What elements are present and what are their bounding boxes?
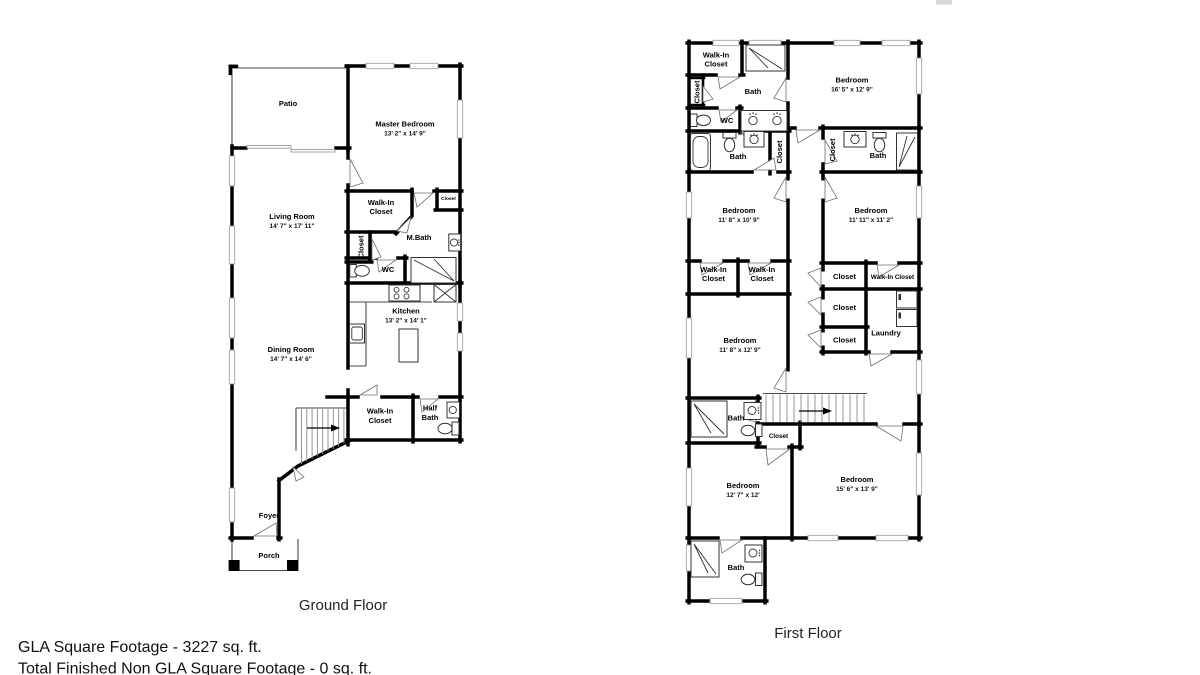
first-floor-title: First Floor [774, 625, 842, 642]
label-bath-left: Bath [730, 152, 747, 161]
label-closet-hall-left: Closet [775, 140, 784, 163]
ground-floor-title: Ground Floor [299, 597, 387, 614]
footer-non-gla: Total Finished Non GLA Square Footage - … [18, 661, 372, 675]
label-closet-vertical: Closet [357, 235, 366, 258]
label-patio: Patio [279, 99, 298, 108]
label-laundry: Laundry [871, 329, 901, 338]
label-wic-b1: Walk-In [749, 265, 776, 274]
floor-plan-canvas: Patio Master Bedroom 13' 2" x 14' 9" Liv… [0, 0, 1200, 675]
floor-plan-page: Patio Master Bedroom 13' 2" x 14' 9" Liv… [0, 0, 1200, 675]
dims-bedroom-1: 16' 5" x 12' 9" [831, 87, 873, 94]
label-closet-small: Closet [441, 196, 456, 202]
label-bath-bottom: Bath [728, 563, 745, 572]
label-living-room: Living Room [269, 212, 315, 221]
dims-master-bedroom: 13' 2" x 14' 9" [384, 131, 426, 138]
ground-stairs [302, 409, 344, 464]
label-bath-top: Bath [745, 87, 762, 96]
label-wc: WC [382, 265, 395, 274]
label-half-bath-a: Half [423, 404, 438, 413]
label-walk-in-closet-1b: Closet [370, 207, 393, 216]
ground-floor-plan: Patio Master Bedroom 13' 2" x 14' 9" Liv… [229, 63, 463, 614]
dims-dining-room: 14' 7" x 14' 6" [270, 356, 312, 363]
label-walk-in-closet-r: Walk-In Closet [871, 274, 915, 281]
label-bedroom-4: Bedroom [724, 336, 757, 345]
dims-bedroom-4: 11' 8" x 12' 9" [719, 347, 760, 354]
label-walk-in-closet-2b: Closet [369, 416, 392, 425]
label-walk-in-closet-1a: Walk-In [368, 198, 395, 207]
first-walls [687, 41, 921, 603]
label-dining-room: Dining Room [268, 345, 315, 354]
label-master-bedroom: Master Bedroom [375, 120, 435, 129]
label-closet-hall-right: Closet [828, 138, 837, 161]
label-porch: Porch [258, 551, 280, 560]
label-walk-in-closet-2a: Walk-In [367, 407, 394, 416]
label-closet-left: Closet [693, 80, 702, 103]
footer-gla: GLA Square Footage - 3227 sq. ft. [18, 639, 262, 656]
label-wic-b2: Closet [751, 274, 774, 283]
label-foyer: Foyer [259, 511, 280, 520]
label-bedroom-1: Bedroom [836, 76, 869, 85]
first-stairs [763, 394, 867, 423]
label-closet-r1: Closet [833, 272, 856, 281]
first-stairs-arrow [799, 408, 832, 415]
label-kitchen: Kitchen [392, 307, 420, 316]
label-bedroom-6: Bedroom [841, 475, 874, 484]
label-m-bath: M.Bath [407, 233, 432, 242]
label-wic-top-b: Closet [705, 60, 728, 69]
label-closet-r3: Closet [833, 336, 856, 345]
first-fixtures [691, 45, 918, 586]
footer: GLA Square Footage - 3227 sq. ft. Total … [18, 639, 372, 675]
label-wic-a2: Closet [702, 274, 725, 283]
top-right-artifact [936, 0, 952, 5]
label-wic-top-a: Walk-In [703, 51, 730, 60]
label-bedroom-3: Bedroom [855, 206, 888, 215]
label-wic-a1: Walk-In [700, 265, 727, 274]
label-bath-mid: Bath [728, 414, 745, 423]
ground-black-accents [229, 65, 298, 571]
dims-bedroom-2: 11' 8" x 10' 9" [718, 217, 759, 224]
dims-bedroom-3: 11' 11" x 11' 2" [849, 217, 893, 224]
ground-sliding-door [247, 146, 335, 152]
label-closet-stairs: Closet [769, 433, 789, 440]
label-bedroom-2: Bedroom [723, 206, 756, 215]
label-bedroom-5: Bedroom [727, 481, 760, 490]
first-floor-plan: Walk-In Closet Bath Closet WC Bath Close… [686, 40, 921, 642]
dims-living-room: 14' 7" x 17' 11" [269, 223, 314, 230]
dims-bedroom-6: 15' 6" x 13' 9" [836, 486, 878, 493]
label-bath-right: Bath [870, 151, 887, 160]
label-first-wc: WC [721, 116, 734, 125]
label-closet-r2: Closet [833, 303, 856, 312]
dims-bedroom-5: 12' 7" x 12' [726, 492, 760, 499]
label-half-bath-b: Bath [422, 413, 439, 422]
ground-windows [229, 63, 462, 522]
dims-kitchen: 13' 2" x 14' 1" [385, 318, 427, 325]
